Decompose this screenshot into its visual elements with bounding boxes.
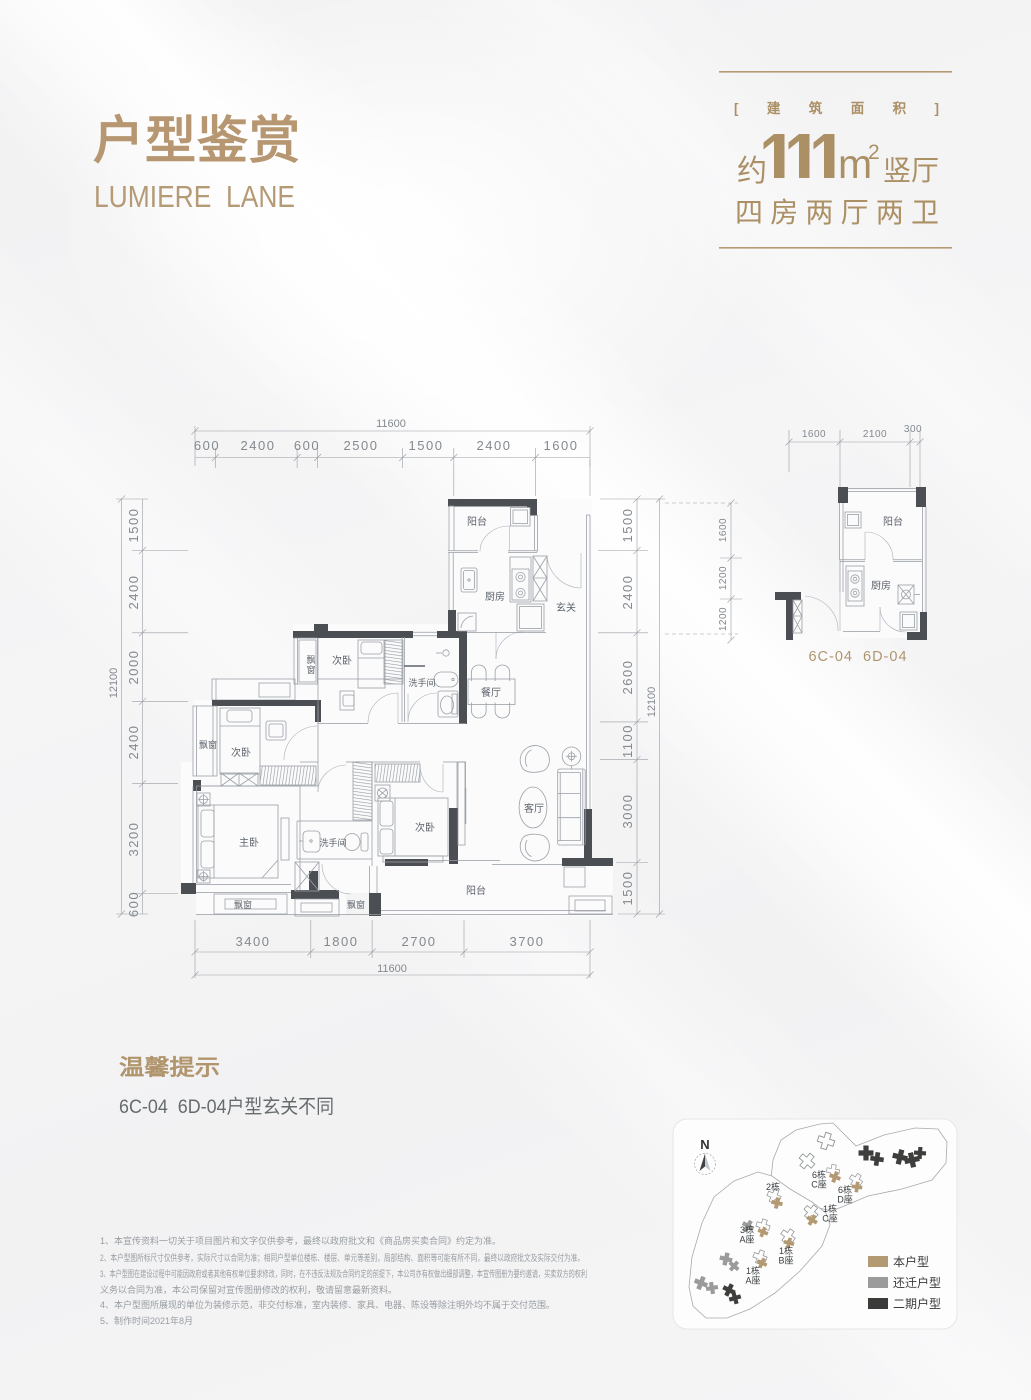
svg-text:5、制作时间2021年8月: 5、制作时间2021年8月 (100, 1315, 193, 1326)
svg-text:洗手间: 洗手间 (408, 677, 435, 688)
svg-text:1500: 1500 (126, 508, 141, 543)
svg-text:1200: 1200 (718, 607, 729, 631)
svg-text:飘窗: 飘窗 (199, 739, 217, 750)
svg-text:2000: 2000 (126, 650, 141, 685)
svg-text:次卧: 次卧 (415, 821, 435, 834)
svg-text:温馨提示: 温馨提示 (119, 1055, 220, 1080)
svg-text:11600: 11600 (376, 418, 406, 430)
svg-text:12100: 12100 (108, 668, 120, 699)
svg-text:约: 约 (737, 155, 767, 188)
svg-text:2600: 2600 (620, 660, 635, 695)
svg-text:2500: 2500 (344, 438, 379, 453)
svg-text:3700: 3700 (510, 934, 545, 949)
svg-text:2、本户型图所标尺寸仅供参考，实际尺寸以合同为准；相同户型单: 2、本户型图所标尺寸仅供参考，实际尺寸以合同为准；相同户型单位楼栋、楼层、单元等… (100, 1252, 584, 1263)
svg-text:还迁户型: 还迁户型 (893, 1275, 941, 1290)
svg-text:阳台: 阳台 (467, 515, 487, 528)
svg-text:次卧: 次卧 (332, 654, 352, 667)
svg-text:2400: 2400 (620, 575, 635, 610)
svg-text:洗手间: 洗手间 (319, 837, 346, 848)
svg-text:飘窗: 飘窗 (234, 899, 252, 910)
svg-text:1600: 1600 (718, 518, 729, 542)
svg-text:客厅: 客厅 (524, 802, 544, 815)
svg-text:3200: 3200 (126, 822, 141, 857)
svg-text:1500: 1500 (409, 438, 444, 453)
svg-text:3000: 3000 (620, 794, 635, 829)
svg-text:阳台: 阳台 (883, 515, 903, 528)
svg-text:N: N (700, 1137, 709, 1152)
svg-text:2400: 2400 (477, 438, 512, 453)
svg-text:2栋: 2栋 (766, 1181, 780, 1192)
svg-text:2400: 2400 (126, 725, 141, 760)
svg-text:1600: 1600 (544, 438, 579, 453)
svg-text:LUMIERE LANE: LUMIERE LANE (94, 179, 295, 214)
svg-text:1栋B座: 1栋B座 (778, 1245, 793, 1266)
svg-text:3400: 3400 (236, 934, 271, 949)
svg-text:四房两厅两卫: 四房两厅两卫 (735, 197, 939, 228)
svg-text:餐厅: 餐厅 (481, 686, 501, 699)
svg-text:3栋A座: 3栋A座 (739, 1224, 754, 1245)
svg-text:6C-04 6D-04户型玄关不同: 6C-04 6D-04户型玄关不同 (119, 1096, 334, 1118)
svg-text:2100: 2100 (863, 429, 887, 440)
svg-text:1800: 1800 (324, 934, 359, 949)
svg-text:厨房: 厨房 (871, 579, 891, 592)
svg-text:1500: 1500 (620, 508, 635, 543)
svg-text:2: 2 (868, 141, 880, 164)
svg-text:义务以合同为准，本公司保留对宣传图册修改的权利，敬请留意最新: 义务以合同为准，本公司保留对宣传图册修改的权利，敬请留意最新资料。 (100, 1284, 397, 1295)
svg-text:本户型: 本户型 (893, 1254, 929, 1269)
svg-text:厨房: 厨房 (485, 590, 505, 603)
svg-text:6栋C座: 6栋C座 (811, 1169, 827, 1190)
svg-text:4、本户型图所展现的单位为装修示范，非交付标准，室内装修、家: 4、本户型图所展现的单位为装修示范，非交付标准，室内装修、家具、电器、陈设等除注… (100, 1299, 555, 1310)
svg-text:2700: 2700 (402, 934, 437, 949)
svg-text:11600: 11600 (377, 963, 407, 975)
svg-text:1栋C座: 1栋C座 (822, 1203, 838, 1224)
svg-text:2400: 2400 (126, 575, 141, 610)
svg-text:1栋A座: 1栋A座 (745, 1265, 760, 1286)
svg-text:户型鉴赏: 户型鉴赏 (93, 112, 301, 169)
svg-text:竖厅: 竖厅 (883, 155, 939, 186)
svg-text:12100: 12100 (646, 687, 658, 718)
svg-text:6栋D座: 6栋D座 (837, 1184, 853, 1205)
svg-text:飘窗: 飘窗 (347, 899, 365, 910)
svg-text:1600: 1600 (802, 429, 826, 440)
svg-text:飘窗: 飘窗 (306, 655, 315, 675)
svg-text:玄关: 玄关 (556, 601, 576, 614)
svg-text:3、本户型图在建设过程中可能因政府或者其他有权单位要求修改，: 3、本户型图在建设过程中可能因政府或者其他有权单位要求修改，同时，在不违反法规及… (100, 1268, 587, 1279)
svg-text:600: 600 (126, 891, 141, 917)
svg-text:600: 600 (294, 438, 320, 453)
svg-text:600: 600 (194, 438, 220, 453)
svg-text:6C-04 6D-04: 6C-04 6D-04 (808, 649, 907, 665)
svg-text:300: 300 (904, 424, 922, 435)
svg-text:1500: 1500 (620, 871, 635, 906)
svg-text:1100: 1100 (620, 724, 635, 758)
svg-text:二期户型: 二期户型 (893, 1296, 941, 1311)
svg-text:[ 建 筑 面 积 ]: [ 建 筑 面 积 ] (734, 100, 939, 116)
svg-text:1、本宣传资料一切关于项目图片和文字仅供参考，最终以政府批文: 1、本宣传资料一切关于项目图片和文字仅供参考，最终以政府批文和《商品房买卖合同》… (100, 1235, 501, 1246)
svg-text:阳台: 阳台 (466, 884, 486, 897)
svg-text:1200: 1200 (718, 566, 729, 590)
svg-text:主卧: 主卧 (239, 836, 259, 849)
svg-text:2400: 2400 (241, 438, 276, 453)
svg-text:次卧: 次卧 (231, 746, 251, 759)
